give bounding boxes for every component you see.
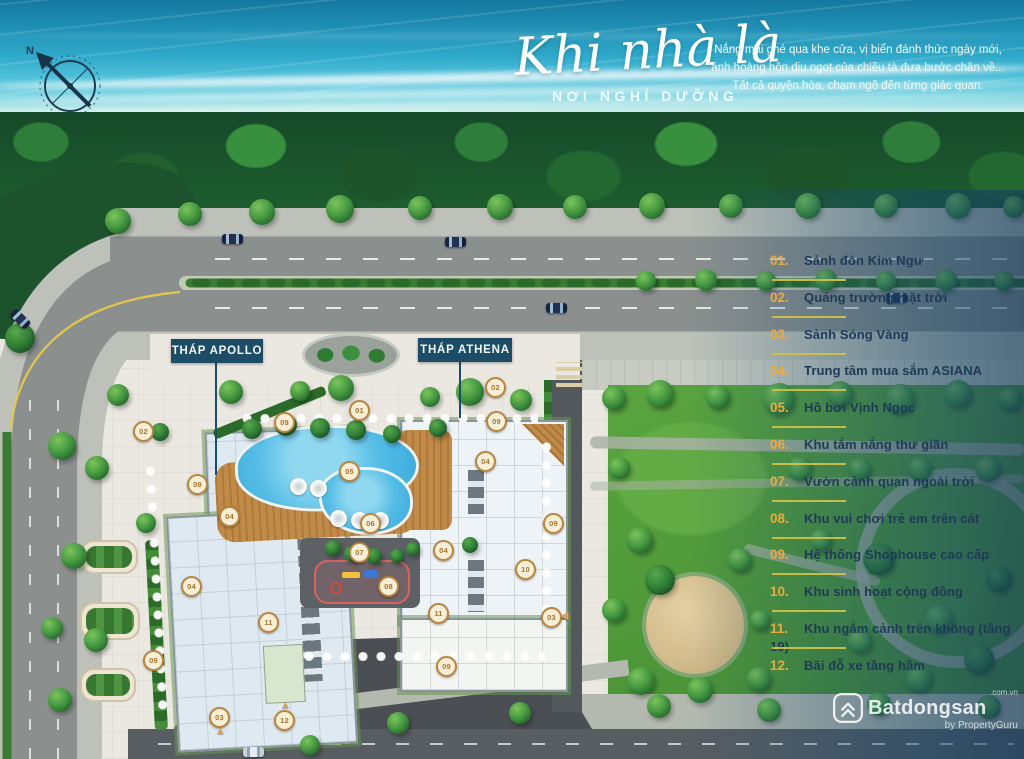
- legend-item-label: Vườn cảnh quan ngoài trời: [804, 474, 975, 489]
- tower-label-apollo: THÁP APOLLO: [171, 339, 263, 363]
- compass-north-label: N: [26, 45, 34, 57]
- legend-item-01: 01.Sảnh đón Kim Ngư: [770, 252, 1020, 282]
- tower-label-apollo-text: THÁP APOLLO: [172, 345, 263, 357]
- site-plan-image: 0102020303040404040506070809090909090910…: [0, 0, 1024, 759]
- map-marker-04: 04: [475, 451, 496, 472]
- legend-item-label: Khu ngắm cảnh trên không (tầng 19): [770, 621, 1011, 654]
- legend-item-number: 10.: [770, 584, 804, 599]
- map-marker-09: 09: [436, 656, 457, 677]
- legend-item-12: 12.Bãi đỗ xe tầng hầm: [770, 657, 1020, 687]
- legend-divider-line: [772, 389, 846, 391]
- map-marker-11: 11: [258, 612, 279, 633]
- map-marker-08: 08: [378, 576, 399, 597]
- legend-item-label: Sảnh Sóng Vàng: [804, 327, 909, 342]
- legend-item-label: Quảng trường mặt trời: [804, 290, 947, 305]
- brand-byline: by PropertyGuru: [868, 720, 1018, 731]
- entrance-arrow-icon: ▲: [280, 700, 291, 711]
- legend-item-number: 04.: [770, 363, 804, 378]
- map-marker-04: 04: [181, 576, 202, 597]
- tower-label-athena: THÁP ATHENA: [418, 338, 512, 362]
- legend-divider-line: [772, 647, 846, 649]
- brand-domain: .com.vn: [868, 688, 1018, 697]
- map-marker-09: 09: [274, 412, 295, 433]
- brand-name: Batdongsan: [868, 697, 1018, 720]
- legend-item-05: 05.Hồ bơi Vịnh Ngọc: [770, 399, 1020, 429]
- entrance-arrow-icon: ◀: [560, 611, 568, 622]
- entrance-arrow-icon: ▲: [215, 726, 226, 737]
- legend: 01.Sảnh đón Kim Ngư02.Quảng trường mặt t…: [770, 252, 1020, 692]
- brand-house-icon: [832, 692, 864, 724]
- legend-item-number: 08.: [770, 511, 804, 526]
- legend-item-number: 09.: [770, 547, 804, 562]
- legend-item-10: 10.Khu sinh hoạt cộng đồng: [770, 583, 1020, 613]
- map-marker-10: 10: [515, 559, 536, 580]
- map-marker-03: 03: [541, 607, 562, 628]
- legend-item-07: 07.Vườn cảnh quan ngoài trời: [770, 473, 1020, 503]
- map-marker-06: 06: [360, 513, 381, 534]
- legend-item-number: 01.: [770, 253, 804, 268]
- map-marker-04: 04: [219, 506, 240, 527]
- legend-item-number: 07.: [770, 474, 804, 489]
- legend-item-label: Khu vui chơi trẻ em trên cát: [804, 511, 979, 526]
- map-marker-04: 04: [433, 540, 454, 561]
- legend-divider-line: [772, 463, 846, 465]
- legend-item-number: 12.: [770, 658, 804, 673]
- legend-divider-line: [772, 610, 846, 612]
- legend-item-04: 04.Trung tâm mua sắm ASIANA: [770, 362, 1020, 392]
- map-marker-09: 09: [143, 650, 164, 671]
- legend-item-03: 03.Sảnh Sóng Vàng: [770, 326, 1020, 356]
- legend-item-number: 11.: [770, 621, 804, 636]
- legend-divider-line: [772, 537, 846, 539]
- legend-divider-line: [772, 500, 846, 502]
- athena-leader-line: [459, 362, 461, 418]
- map-marker-12: 12: [274, 710, 295, 731]
- legend-item-label: Sảnh đón Kim Ngư: [804, 253, 923, 268]
- legend-item-11: 11.Khu ngắm cảnh trên không (tầng 19): [770, 620, 1020, 650]
- map-marker-09: 09: [187, 474, 208, 495]
- legend-item-number: 06.: [770, 437, 804, 452]
- map-marker-11: 11: [428, 603, 449, 624]
- legend-divider-line: [772, 426, 846, 428]
- tagline: Nắng mai ghé qua khe cửa, vị biển đánh t…: [700, 42, 1016, 95]
- map-marker-05: 05: [339, 461, 360, 482]
- legend-divider-line: [772, 279, 846, 281]
- legend-item-label: Bãi đỗ xe tầng hầm: [804, 658, 925, 673]
- legend-divider-line: [772, 353, 846, 355]
- legend-item-label: Hệ thống Shophouse cao cấp: [804, 547, 989, 562]
- legend-item-08: 08.Khu vui chơi trẻ em trên cát: [770, 510, 1020, 540]
- apollo-leader-line: [215, 363, 217, 475]
- legend-item-06: 06.Khu tắm nắng thư giãn: [770, 436, 1020, 466]
- legend-item-09: 09.Hệ thống Shophouse cao cấp: [770, 546, 1020, 576]
- legend-item-number: 02.: [770, 290, 804, 305]
- map-marker-07: 07: [349, 542, 370, 563]
- map-marker-09: 09: [543, 513, 564, 534]
- legend-divider-line: [772, 573, 846, 575]
- legend-divider-line: [772, 316, 846, 318]
- compass-icon: N: [24, 40, 108, 124]
- map-marker-02: 02: [133, 421, 154, 442]
- map-marker-02: 02: [485, 377, 506, 398]
- legend-item-label: Hồ bơi Vịnh Ngọc: [804, 400, 915, 415]
- brand-watermark: .com.vn Batdongsan by PropertyGuru: [868, 688, 1018, 731]
- map-marker-01: 01: [349, 400, 370, 421]
- legend-item-number: 05.: [770, 400, 804, 415]
- legend-item-number: 03.: [770, 327, 804, 342]
- tower-label-athena-text: THÁP ATHENA: [420, 344, 510, 356]
- legend-item-label: Trung tâm mua sắm ASIANA: [804, 363, 982, 378]
- legend-item-label: Khu tắm nắng thư giãn: [804, 437, 948, 452]
- legend-item-label: Khu sinh hoạt cộng đồng: [804, 584, 963, 599]
- map-marker-09: 09: [486, 411, 507, 432]
- legend-item-02: 02.Quảng trường mặt trời: [770, 289, 1020, 319]
